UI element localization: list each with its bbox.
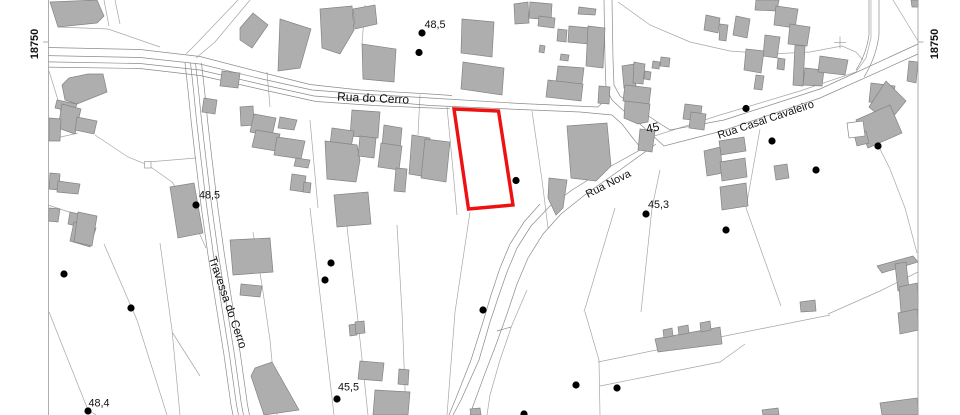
svg-text:45,3: 45,3 — [648, 199, 669, 211]
svg-text:48,5: 48,5 — [199, 190, 220, 202]
svg-text:48,4: 48,4 — [89, 398, 110, 410]
svg-text:18750: 18750 — [929, 29, 941, 60]
svg-text:48,5: 48,5 — [425, 19, 446, 31]
svg-text:45,5: 45,5 — [338, 382, 359, 394]
svg-text:18750: 18750 — [29, 29, 41, 60]
